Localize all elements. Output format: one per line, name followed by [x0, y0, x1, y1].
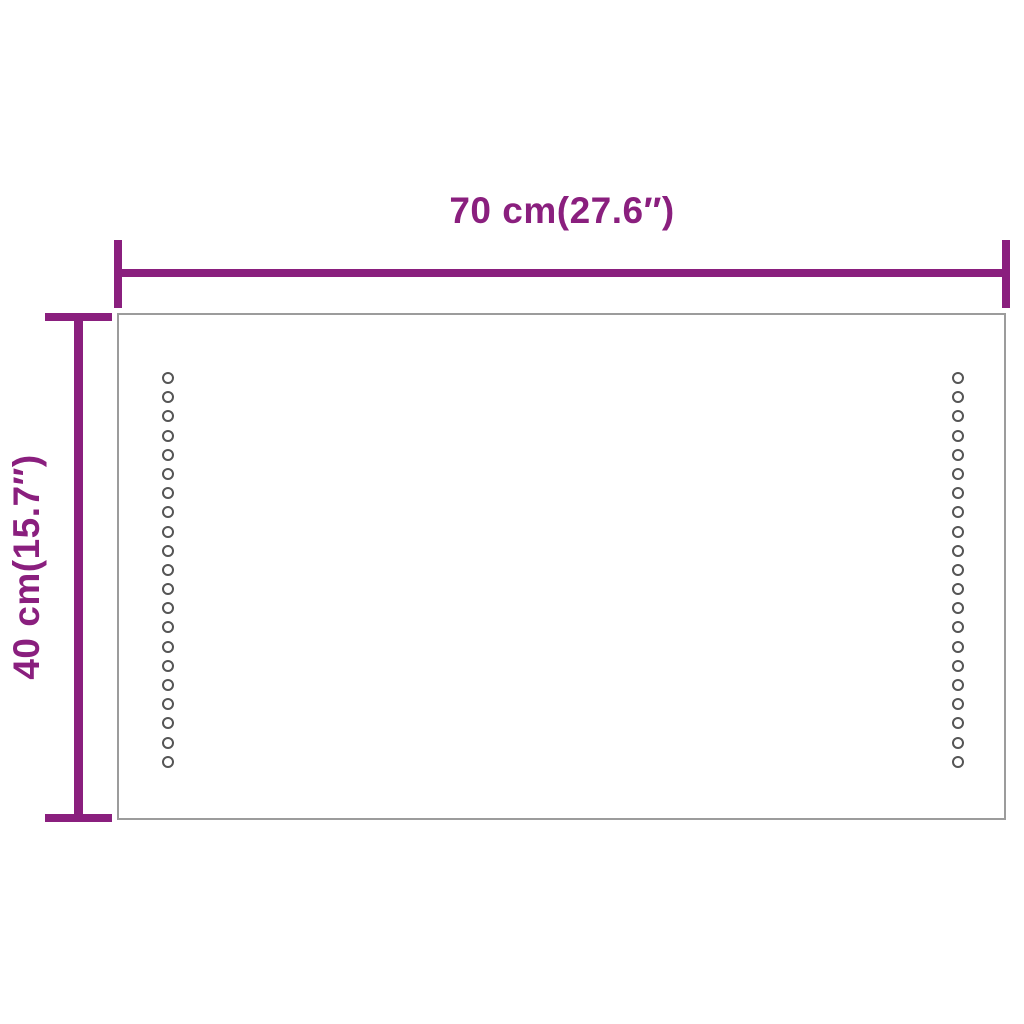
height-dimension-tick-bottom: [45, 814, 112, 822]
led-dot: [952, 487, 964, 499]
led-dot: [952, 737, 964, 749]
led-dot: [952, 583, 964, 595]
led-dot: [952, 410, 964, 422]
mirror-outline: [117, 313, 1006, 820]
led-dot: [952, 621, 964, 633]
led-dot: [162, 372, 174, 384]
led-dot: [952, 430, 964, 442]
led-dot: [952, 679, 964, 691]
led-dot: [162, 468, 174, 480]
led-dot: [952, 641, 964, 653]
led-dot-column-left: [162, 372, 174, 768]
led-dot: [162, 698, 174, 710]
led-dot: [952, 602, 964, 614]
led-dot: [952, 545, 964, 557]
led-dot: [162, 756, 174, 768]
width-dimension-tick-right: [1002, 240, 1010, 308]
led-dot: [162, 660, 174, 672]
led-dot: [162, 391, 174, 403]
led-dot-column-right: [952, 372, 964, 768]
led-dot: [162, 506, 174, 518]
width-dimension-line: [114, 269, 1010, 277]
led-dot: [952, 564, 964, 576]
led-dot: [162, 410, 174, 422]
height-dimension-tick-top: [45, 313, 112, 321]
led-dot: [162, 545, 174, 557]
led-dot: [162, 449, 174, 461]
led-dot: [952, 660, 964, 672]
led-dot: [952, 468, 964, 480]
led-dot: [162, 679, 174, 691]
height-dimension-line: [74, 314, 83, 822]
led-dot: [162, 583, 174, 595]
width-dimension-label: 70 cm(27.6″): [449, 190, 674, 232]
led-dot: [952, 372, 964, 384]
led-dot: [952, 449, 964, 461]
led-dot: [162, 621, 174, 633]
led-dot: [162, 737, 174, 749]
led-dot: [162, 430, 174, 442]
led-dot: [162, 564, 174, 576]
dimension-diagram: 70 cm(27.6″) 40 cm(15.7″): [0, 0, 1024, 1024]
led-dot: [952, 756, 964, 768]
led-dot: [162, 487, 174, 499]
led-dot: [162, 641, 174, 653]
led-dot: [952, 717, 964, 729]
led-dot: [162, 602, 174, 614]
width-dimension-tick-left: [114, 240, 122, 308]
led-dot: [952, 698, 964, 710]
led-dot: [162, 717, 174, 729]
led-dot: [952, 506, 964, 518]
led-dot: [162, 526, 174, 538]
height-dimension-label: 40 cm(15.7″): [6, 454, 48, 679]
led-dot: [952, 526, 964, 538]
led-dot: [952, 391, 964, 403]
